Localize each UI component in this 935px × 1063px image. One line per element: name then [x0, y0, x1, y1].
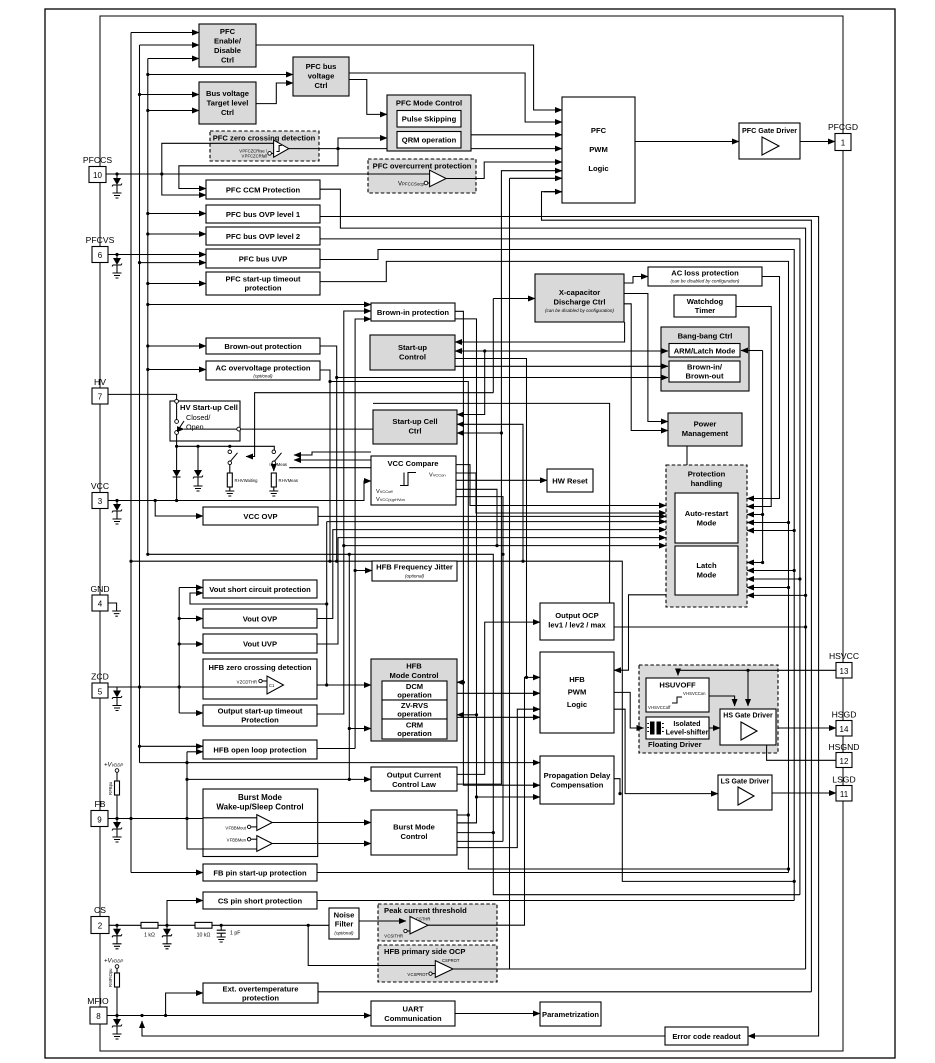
svg-text:Compensation: Compensation [551, 781, 604, 790]
svg-text:Ctrl: Ctrl [314, 81, 327, 90]
svg-text:HFB Frequency Jitter: HFB Frequency Jitter [376, 563, 453, 572]
svg-text:HW Reset: HW Reset [552, 477, 588, 486]
svg-text:operation: operation [397, 691, 432, 700]
svg-text:PFC bus: PFC bus [306, 62, 337, 71]
svg-text:operation: operation [397, 729, 432, 738]
svg-text:QRM operation: QRM operation [402, 136, 457, 145]
svg-text:Mode: Mode [697, 571, 717, 580]
svg-text:HFB zero crossing detection: HFB zero crossing detection [209, 663, 312, 672]
svg-text:1 kΩ: 1 kΩ [144, 933, 155, 939]
svg-text:Output Current: Output Current [387, 771, 442, 780]
svg-text:HFB: HFB [569, 675, 585, 684]
svg-text:UART: UART [402, 1005, 423, 1014]
svg-text:protection: protection [244, 284, 281, 293]
svg-text:GND: GND [90, 584, 109, 594]
svg-text:X-capacitor: X-capacitor [559, 288, 600, 297]
svg-text:Floating Driver: Floating Driver [648, 740, 702, 749]
svg-text:Management: Management [682, 429, 729, 438]
svg-text:HSVCC: HSVCC [829, 651, 859, 661]
svg-text:(can be disabled by configurat: (can be disabled by configuration) [671, 279, 740, 284]
svg-text:PFC overcurrent protection: PFC overcurrent protection [373, 162, 472, 171]
svg-text:Protection: Protection [241, 716, 279, 725]
svg-text:Logic: Logic [588, 164, 608, 173]
svg-text:CSPROT: CSPROT [442, 958, 460, 963]
svg-text:13: 13 [840, 667, 849, 676]
svg-text:10: 10 [93, 171, 102, 180]
svg-text:Disable: Disable [214, 46, 241, 55]
svg-text:ARM/Latch Mode: ARM/Latch Mode [674, 347, 736, 356]
svg-text:protection: protection [242, 994, 279, 1003]
svg-text:+VVDDP: +VVDDP [104, 763, 123, 769]
svg-text:+VVDDP: +VVDDP [104, 959, 123, 965]
svg-text:Logic: Logic [567, 700, 587, 709]
svg-text:9: 9 [97, 816, 102, 825]
svg-text:Start-up: Start-up [398, 343, 427, 352]
svg-text:PWM: PWM [589, 145, 608, 154]
svg-text:V CSITHR: V CSITHR [384, 934, 403, 939]
svg-text:R MFIOpu: R MFIOpu [108, 968, 113, 987]
svg-text:R HVWaiting: R HVWaiting [235, 478, 259, 483]
svg-text:4: 4 [98, 600, 103, 609]
svg-text:PWM: PWM [568, 688, 587, 697]
svg-text:10 kΩ: 10 kΩ [197, 933, 211, 939]
svg-text:Ext. overtemperature: Ext. overtemperature [223, 985, 299, 994]
svg-text:(optional): (optional) [405, 574, 425, 579]
svg-text:Peak current threshold: Peak current threshold [384, 906, 467, 915]
svg-text:5: 5 [98, 688, 103, 697]
svg-text:V HSVCCon: V HSVCCon [683, 691, 706, 696]
svg-text:CS pin short protection: CS pin short protection [218, 897, 303, 906]
svg-text:PFC Mode Control: PFC Mode Control [396, 99, 462, 108]
svg-text:Noise: Noise [334, 911, 355, 920]
svg-text:Watchdog: Watchdog [687, 297, 724, 306]
svg-text:PFC bus OVP level 1: PFC bus OVP level 1 [226, 210, 301, 219]
svg-text:voltage: voltage [308, 72, 335, 81]
svg-text:Control: Control [399, 353, 426, 362]
svg-text:LSGD: LSGD [832, 775, 855, 785]
svg-text:Latch: Latch [696, 561, 717, 570]
svg-text:Output start-up timeout: Output start-up timeout [218, 707, 303, 716]
svg-text:Burst Mode: Burst Mode [238, 793, 283, 802]
svg-text:Control: Control [401, 832, 428, 841]
svg-text:Mode: Mode [697, 519, 717, 528]
svg-text:(optional): (optional) [334, 931, 354, 936]
svg-text:AC overvoltage protection: AC overvoltage protection [216, 364, 311, 373]
svg-text:7: 7 [98, 393, 103, 402]
svg-text:HSGD: HSGD [832, 710, 857, 720]
svg-text:Ctrl: Ctrl [221, 56, 234, 65]
svg-text:HV: HV [94, 377, 106, 387]
svg-text:VCC: VCC [91, 481, 109, 491]
svg-text:Ctrl: Ctrl [221, 108, 234, 117]
svg-text:V ZCDTHR: V ZCDTHR [237, 679, 257, 684]
svg-text:V CSPROT: V CSPROT [407, 972, 428, 977]
svg-text:8: 8 [96, 1012, 101, 1021]
svg-text:Mode Control: Mode Control [390, 671, 439, 680]
svg-text:1 pF: 1 pF [230, 931, 240, 937]
svg-text:PFC bus UVP: PFC bus UVP [239, 255, 288, 264]
svg-text:V FBBMout: V FBBMout [225, 825, 246, 830]
svg-text:PFC start-up timeout: PFC start-up timeout [225, 275, 301, 284]
svg-text:HFB open loop protection: HFB open loop protection [213, 746, 307, 755]
svg-text:VCC Compare: VCC Compare [387, 459, 438, 468]
svg-text:PFCCS: PFCCS [83, 155, 112, 165]
svg-text:Timer: Timer [695, 306, 716, 315]
svg-text:12: 12 [840, 757, 849, 766]
svg-text:Protection: Protection [688, 470, 726, 479]
svg-text:11: 11 [840, 790, 849, 799]
svg-text:Auto-restart: Auto-restart [685, 509, 729, 518]
svg-text:Control Law: Control Law [392, 780, 436, 789]
svg-text:R HVMeas: R HVMeas [279, 478, 298, 483]
svg-text:HSUVOFF: HSUVOFF [659, 681, 696, 690]
svg-text:Ctrl: Ctrl [408, 427, 421, 436]
svg-text:FB: FB [95, 799, 106, 809]
svg-text:Target level: Target level [207, 99, 249, 108]
svg-text:Discharge Ctrl: Discharge Ctrl [554, 298, 606, 307]
svg-text:operation: operation [397, 710, 432, 719]
svg-text:PFC zero crossing detection: PFC zero crossing detection [213, 134, 316, 143]
svg-text:V PFCZCRfall: V PFCZCRfall [242, 154, 268, 159]
svg-text:Power: Power [694, 420, 717, 429]
svg-text:Brown-out protection: Brown-out protection [224, 342, 302, 351]
svg-text:MFIO: MFIO [87, 996, 109, 1006]
svg-text:Bus voltage: Bus voltage [206, 89, 249, 98]
svg-text:(can be disabled by configurat: (can be disabled by configuration) [545, 308, 614, 313]
svg-text:Closed/: Closed/ [186, 413, 210, 422]
svg-text:Pulse Skipping: Pulse Skipping [402, 115, 457, 124]
svg-text:HS Gate Driver: HS Gate Driver [723, 713, 773, 720]
svg-text:ZCD: ZCD [91, 672, 109, 682]
svg-text:handling: handling [691, 479, 723, 488]
svg-text:Bang-bang Ctrl: Bang-bang Ctrl [678, 332, 733, 341]
svg-text:CS: CS [94, 905, 106, 915]
svg-text:Error code readout: Error code readout [672, 1032, 741, 1041]
svg-text:HV Start-up Cell: HV Start-up Cell [180, 403, 238, 412]
svg-text:V HSVCCoff: V HSVCCoff [648, 705, 671, 710]
svg-text:Level-shifter: Level-shifter [666, 728, 709, 737]
svg-text:HFB: HFB [406, 662, 422, 671]
svg-text:LS Gate Driver: LS Gate Driver [721, 779, 770, 786]
svg-text:PFC CCM Protection: PFC CCM Protection [226, 186, 301, 195]
svg-text:Vout UVP: Vout UVP [243, 640, 277, 649]
svg-text:1: 1 [841, 139, 846, 148]
svg-text:PFCVS: PFCVS [86, 235, 115, 245]
svg-text:Propagation Delay: Propagation Delay [544, 771, 611, 780]
svg-text:PFC: PFC [591, 126, 607, 135]
svg-text:Parametrization: Parametrization [542, 1010, 599, 1019]
svg-text:3: 3 [98, 497, 103, 506]
svg-text:lev1 / lev2 / max: lev1 / lev2 / max [548, 621, 606, 630]
svg-text:FB pin start-up protection: FB pin start-up protection [213, 869, 307, 878]
svg-text:R FBpu: R FBpu [108, 781, 113, 795]
svg-text:Output OCP: Output OCP [555, 611, 598, 620]
svg-text:PFC: PFC [220, 27, 236, 36]
svg-text:2: 2 [98, 922, 103, 931]
svg-text:HFB primary side OCP: HFB primary side OCP [384, 947, 465, 956]
svg-text:Vout OVP: Vout OVP [243, 615, 277, 624]
svg-text:6: 6 [98, 251, 103, 260]
svg-text:Wake-up/Sleep Control: Wake-up/Sleep Control [216, 803, 303, 812]
svg-text:14: 14 [840, 725, 849, 734]
svg-text:Start-up Cell: Start-up Cell [392, 417, 437, 426]
svg-text:V FBBMen: V FBBMen [227, 838, 247, 843]
svg-text:Brown-in protection: Brown-in protection [377, 308, 449, 317]
svg-text:VCC OVP: VCC OVP [243, 512, 277, 521]
svg-text:PFC Gate Driver: PFC Gate Driver [742, 126, 797, 135]
svg-text:(optional): (optional) [253, 374, 273, 379]
svg-text:C1: C1 [269, 683, 275, 688]
svg-text:Open: Open [186, 423, 204, 432]
svg-text:Vout short circuit protection: Vout short circuit protection [209, 585, 311, 594]
svg-text:Brown-out: Brown-out [686, 372, 724, 381]
svg-text:Filter: Filter [335, 920, 354, 929]
svg-text:Communication: Communication [384, 1014, 442, 1023]
svg-text:Burst Mode: Burst Mode [393, 823, 435, 832]
svg-text:PFCGD: PFCGD [828, 122, 858, 132]
svg-text:PFC bus OVP level 2: PFC bus OVP level 2 [226, 232, 300, 241]
svg-text:Brown-in/: Brown-in/ [687, 363, 723, 372]
svg-text:Enable/: Enable/ [214, 37, 242, 46]
svg-text:HSGND: HSGND [828, 742, 859, 752]
svg-text:AC loss protection: AC loss protection [671, 269, 739, 278]
